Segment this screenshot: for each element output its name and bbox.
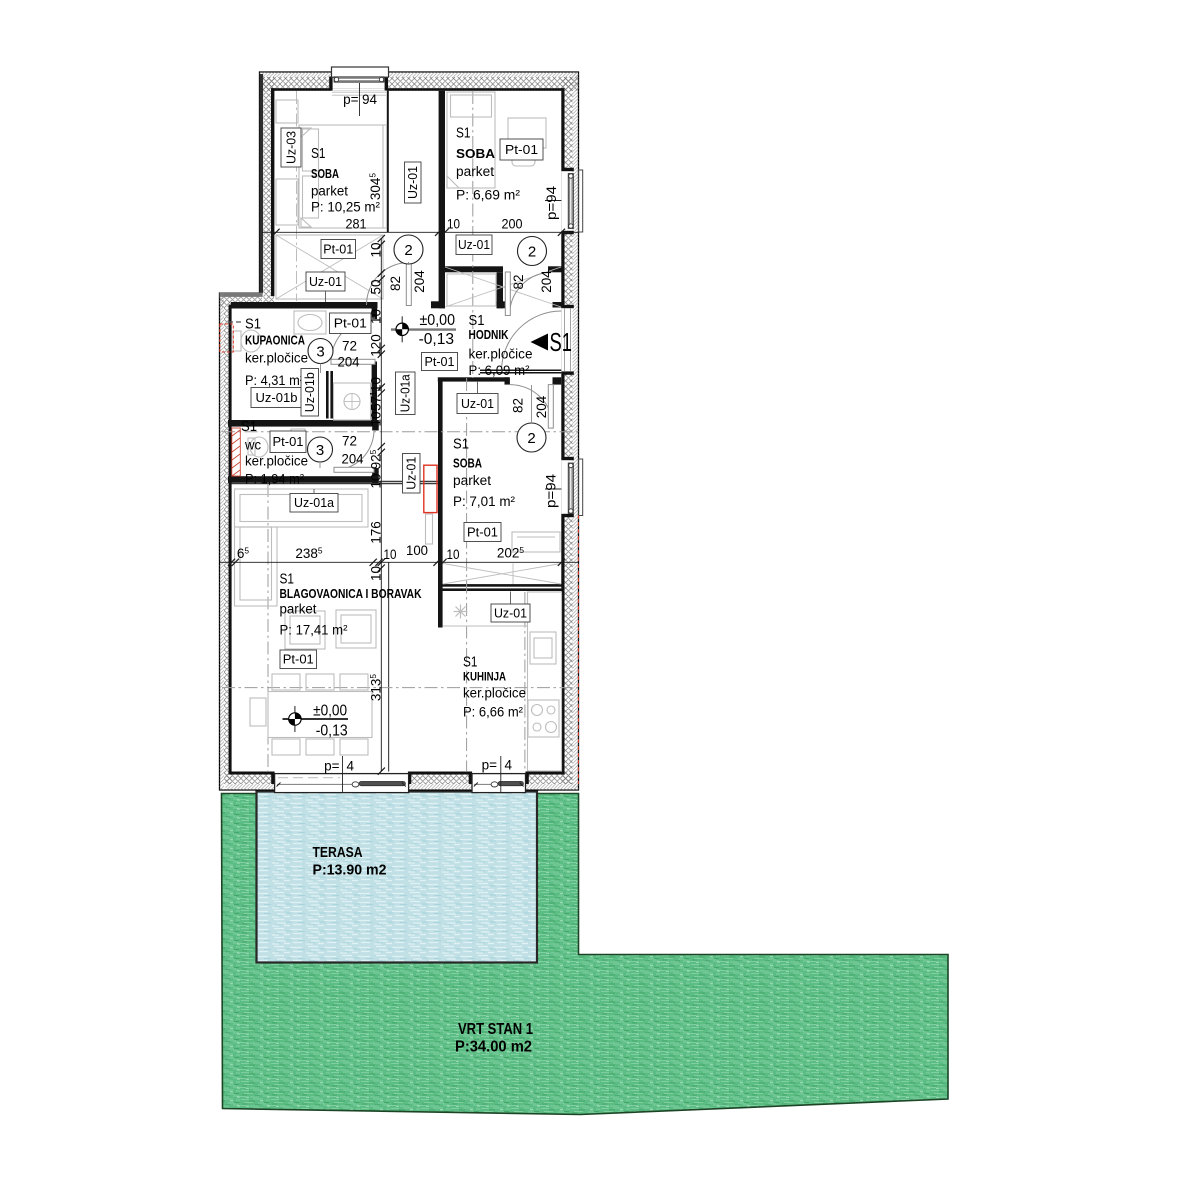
- svg-text:wc: wc: [244, 438, 261, 453]
- svg-text:P: 4,31 m²: P: 4,31 m²: [245, 372, 304, 388]
- svg-text:10: 10: [369, 242, 384, 257]
- svg-text:P: 7,01 m²: P: 7,01 m²: [453, 493, 515, 509]
- svg-text:10: 10: [447, 217, 460, 232]
- svg-text:parket: parket: [453, 473, 491, 488]
- svg-text:S1: S1: [463, 655, 478, 671]
- svg-text:S1: S1: [280, 572, 295, 588]
- svg-text:Uz-01: Uz-01: [309, 274, 342, 289]
- svg-text:Pt-01: Pt-01: [505, 142, 538, 157]
- svg-text:2: 2: [404, 242, 412, 259]
- svg-text:p=: p=: [343, 92, 359, 107]
- svg-text:Pt-01: Pt-01: [323, 241, 353, 256]
- svg-text:S1: S1: [456, 126, 471, 142]
- svg-text:82: 82: [511, 398, 526, 413]
- svg-text:204: 204: [539, 270, 554, 293]
- svg-text:parket: parket: [280, 602, 317, 617]
- svg-text:4: 4: [505, 758, 513, 773]
- svg-text:Uz-01a: Uz-01a: [398, 373, 413, 412]
- svg-text:S1: S1: [245, 317, 261, 333]
- svg-text:VRT STAN 1: VRT STAN 1: [458, 1021, 533, 1038]
- svg-text:2: 2: [527, 430, 535, 447]
- svg-text:SOBA: SOBA: [311, 167, 339, 181]
- svg-text:10: 10: [369, 473, 384, 488]
- svg-text:BLAGOVAONICA I BORAVAK: BLAGOVAONICA I BORAVAK: [280, 587, 422, 601]
- svg-text:100: 100: [406, 543, 428, 558]
- svg-text:10: 10: [369, 566, 384, 581]
- svg-text:204: 204: [412, 270, 427, 293]
- svg-text:Pt-01: Pt-01: [467, 524, 498, 539]
- svg-text:204: 204: [338, 355, 360, 370]
- svg-text:Pt-01: Pt-01: [273, 434, 304, 449]
- svg-text:S1: S1: [241, 419, 257, 435]
- svg-text:ker.pločice: ker.pločice: [245, 454, 308, 469]
- svg-text:200: 200: [502, 217, 523, 232]
- svg-text:Uz-01a: Uz-01a: [294, 495, 335, 510]
- svg-text:204: 204: [342, 452, 364, 467]
- svg-text:10: 10: [447, 547, 460, 562]
- svg-text:-0,13: -0,13: [316, 723, 348, 740]
- svg-text:281: 281: [346, 217, 367, 232]
- svg-text:S1: S1: [311, 146, 326, 162]
- svg-text:P:13.90 m2: P:13.90 m2: [313, 863, 387, 879]
- svg-text:ker.pločice: ker.pločice: [245, 351, 308, 366]
- svg-text:Uz-01b: Uz-01b: [256, 390, 298, 405]
- svg-text:TERASA: TERASA: [313, 845, 363, 861]
- svg-text:Uz-03: Uz-03: [283, 131, 298, 164]
- svg-text:Pt-01: Pt-01: [283, 652, 314, 667]
- svg-text:KUPAONICA: KUPAONICA: [245, 333, 305, 347]
- svg-text:p=: p=: [482, 758, 498, 773]
- svg-text:72: 72: [342, 339, 357, 354]
- svg-text:p=94: p=94: [544, 473, 559, 508]
- svg-text:-0,13: -0,13: [419, 331, 455, 348]
- svg-text:ker.pločice: ker.pločice: [463, 686, 526, 701]
- svg-text:P: 6,69 m²: P: 6,69 m²: [456, 187, 520, 203]
- svg-text:Uz-01: Uz-01: [461, 396, 494, 411]
- svg-text:±0,00: ±0,00: [420, 312, 456, 329]
- svg-text:parket: parket: [311, 184, 348, 199]
- svg-text:S1: S1: [469, 313, 485, 329]
- svg-text:P: 6,09 m²: P: 6,09 m²: [469, 362, 530, 378]
- svg-text:Pt-01: Pt-01: [425, 354, 455, 369]
- svg-text:72: 72: [342, 434, 357, 449]
- svg-text:ker.pločice: ker.pločice: [469, 347, 533, 362]
- svg-text:3: 3: [316, 343, 324, 360]
- svg-text:Uz-01: Uz-01: [405, 166, 420, 199]
- svg-text:10: 10: [384, 547, 397, 562]
- svg-text:Uz-01: Uz-01: [494, 605, 527, 620]
- svg-text:P: 6,66 m²: P: 6,66 m²: [463, 704, 523, 720]
- svg-text:P: 17,41 m²: P: 17,41 m²: [280, 622, 348, 638]
- svg-text:parket: parket: [456, 164, 494, 179]
- svg-text:10: 10: [369, 411, 384, 426]
- svg-text:±0,00: ±0,00: [313, 703, 347, 720]
- svg-text:Uz-01: Uz-01: [458, 237, 490, 252]
- svg-text:Uz-01: Uz-01: [404, 457, 419, 490]
- svg-text:p=94: p=94: [544, 185, 559, 220]
- svg-text:P:34.00 m2: P:34.00 m2: [455, 1039, 532, 1056]
- svg-text:10: 10: [369, 377, 384, 392]
- svg-text:P: 10,25 m²: P: 10,25 m²: [311, 199, 380, 215]
- svg-text:Pt-01: Pt-01: [334, 316, 367, 331]
- svg-text:HODNIK: HODNIK: [469, 328, 509, 342]
- svg-text:KUHINJA: KUHINJA: [463, 669, 506, 683]
- svg-text:S1: S1: [453, 437, 469, 453]
- svg-text:94: 94: [362, 92, 378, 107]
- svg-text:Uz-01b: Uz-01b: [302, 372, 317, 412]
- svg-text:82: 82: [388, 276, 403, 291]
- svg-text:SOBA: SOBA: [453, 457, 482, 471]
- svg-text:2: 2: [528, 243, 536, 260]
- svg-text:120: 120: [369, 334, 384, 357]
- svg-text:50: 50: [369, 279, 384, 294]
- svg-text:176: 176: [369, 521, 384, 544]
- svg-text:P: 1,94 m²: P: 1,94 m²: [245, 471, 304, 487]
- svg-text:4: 4: [347, 759, 355, 774]
- svg-text:204: 204: [534, 395, 549, 418]
- svg-text:3: 3: [316, 442, 324, 459]
- svg-text:SOBA: SOBA: [456, 147, 495, 161]
- svg-text:82: 82: [511, 274, 526, 289]
- svg-text:S1: S1: [550, 327, 573, 357]
- svg-text:p=: p=: [324, 759, 340, 774]
